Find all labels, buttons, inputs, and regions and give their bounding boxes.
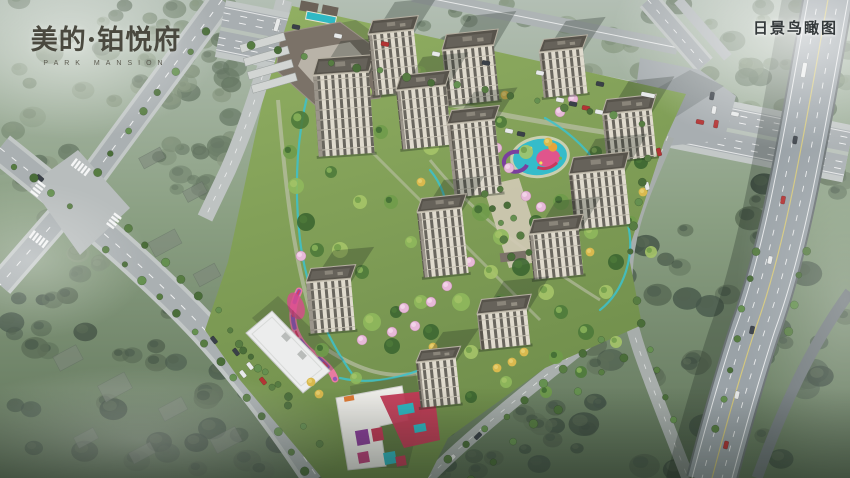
forest-canopy-highlight — [647, 286, 661, 297]
forest-canopy-highlight — [222, 110, 234, 119]
street-tree — [482, 86, 489, 93]
masterplan-scene — [0, 0, 850, 478]
shrub-highlight — [514, 260, 522, 268]
street-tree — [587, 108, 593, 114]
street-tree — [11, 164, 17, 170]
forest-canopy-highlight — [125, 349, 135, 357]
shrub-highlight — [521, 147, 527, 153]
street-tree — [328, 60, 334, 66]
rooftop-unit — [606, 161, 613, 166]
rooftop-unit — [480, 113, 486, 117]
forest-canopy-highlight — [189, 176, 195, 181]
street-tree — [274, 46, 282, 54]
brand-logo: 美的·铂悦府 PARK MANSION — [20, 18, 192, 67]
forest-canopy-highlight — [148, 355, 159, 364]
rooftop-unit — [570, 42, 576, 46]
street-tree — [481, 190, 488, 197]
street-tree — [579, 349, 587, 357]
shrub-highlight — [610, 256, 617, 263]
shrub-highlight — [601, 287, 607, 293]
street-tree — [620, 354, 628, 362]
forest-canopy-highlight — [171, 185, 178, 190]
shrub-highlight — [407, 238, 412, 243]
street-tree — [560, 104, 568, 112]
aerial-rendering: 美的·铂悦府 PARK MANSION 日景鸟瞰图 — [0, 0, 850, 478]
street-tree — [402, 73, 411, 82]
rooftop-unit — [511, 302, 517, 306]
rooftop-unit — [477, 37, 484, 41]
shrub-highlight — [612, 338, 617, 343]
cherry-blossom-highlight — [358, 336, 363, 341]
forest-canopy-highlight — [149, 341, 158, 348]
street-tree — [599, 369, 605, 375]
street-tree — [248, 354, 254, 360]
shrub-highlight — [392, 308, 397, 313]
forest-canopy-highlight — [168, 355, 179, 363]
rooftop-unit — [400, 23, 406, 27]
shrub-highlight — [327, 168, 332, 173]
shrub-highlight — [376, 127, 382, 133]
street-tree — [539, 379, 548, 388]
rooftop-unit — [337, 272, 343, 276]
street-tree — [629, 222, 638, 231]
street-tree — [639, 121, 645, 127]
rooftop-unit — [448, 201, 454, 205]
street-tree — [235, 340, 243, 348]
cherry-blossom-highlight — [427, 298, 432, 303]
shrub-highlight — [299, 215, 307, 223]
shrub-highlight — [425, 326, 432, 333]
street-tree — [454, 81, 461, 88]
shrub-highlight — [312, 245, 318, 251]
rooftop-unit — [325, 270, 333, 275]
forest-canopy-highlight — [164, 138, 174, 146]
forest-canopy-highlight — [114, 349, 123, 356]
forest-canopy-highlight — [61, 145, 72, 153]
view-caption: 日景鸟瞰图 — [753, 17, 838, 38]
street-tree — [654, 367, 660, 373]
golden-accent-highlight — [640, 189, 644, 193]
street-tree — [192, 329, 198, 335]
street-tree — [93, 168, 101, 176]
forest-canopy-highlight — [210, 138, 224, 149]
street-tree — [172, 309, 180, 317]
street-tree — [254, 364, 262, 372]
shrub-highlight — [474, 205, 482, 213]
cherry-blossom-highlight — [443, 282, 448, 287]
shrub-highlight — [551, 352, 557, 358]
tower-facade — [529, 229, 584, 280]
rooftop-unit — [636, 102, 642, 106]
tower-facade — [313, 71, 375, 157]
shrub-highlight — [577, 368, 582, 373]
cherry-blossom-highlight — [537, 203, 542, 208]
street-tree — [217, 357, 226, 366]
street-tree — [352, 64, 361, 73]
shrub-highlight — [486, 267, 492, 273]
shrub-highlight — [285, 147, 291, 153]
shrub-highlight — [416, 297, 422, 303]
shrub-highlight — [454, 295, 462, 303]
cherry-blossom-highlight — [297, 252, 302, 257]
street-tree — [161, 258, 170, 267]
shrub-highlight — [290, 180, 297, 187]
street-tree — [200, 340, 208, 348]
forest-canopy-highlight — [25, 339, 39, 350]
street-tree — [633, 297, 641, 305]
golden-accent-highlight — [308, 379, 312, 383]
street-tree — [489, 205, 496, 212]
street-tree — [247, 41, 255, 49]
street-tree — [262, 369, 268, 375]
cherry-blossom-highlight — [400, 304, 405, 309]
shrub-highlight — [466, 347, 472, 353]
cherry-blossom-highlight — [505, 164, 510, 169]
shrub-highlight — [293, 113, 301, 121]
street-tree — [157, 294, 163, 300]
shrub-highlight — [556, 307, 562, 313]
street-tree — [507, 92, 514, 99]
shrub-highlight — [355, 197, 361, 203]
brand-logo-english: PARK MANSION — [20, 60, 192, 67]
shrub-highlight — [317, 345, 323, 351]
golden-accent-highlight — [509, 359, 513, 363]
forest-canopy-highlight — [683, 358, 691, 364]
cherry-blossom-highlight — [411, 322, 416, 327]
street-tree — [559, 365, 567, 373]
street-tree — [628, 249, 634, 255]
shrub-highlight — [647, 248, 652, 253]
street-tree — [610, 111, 618, 119]
street-tree — [240, 347, 247, 354]
street-tree — [510, 215, 516, 221]
street-tree — [194, 292, 202, 300]
shrub-highlight — [352, 374, 357, 379]
shrub-highlight — [365, 315, 373, 323]
forest-canopy-highlight — [659, 254, 668, 261]
street-tree — [216, 307, 222, 313]
street-tree — [498, 220, 504, 226]
street-tree — [638, 178, 646, 186]
street-tree — [517, 232, 525, 240]
golden-accent-highlight — [521, 349, 525, 353]
street-tree — [177, 275, 185, 283]
cherry-blossom-highlight — [388, 328, 393, 333]
forest-canopy-highlight — [671, 260, 682, 268]
tower-facade — [477, 309, 530, 350]
golden-accent-highlight — [545, 139, 549, 143]
golden-accent-highlight — [418, 179, 422, 183]
forest-canopy-highlight — [676, 289, 690, 300]
forest-canopy-highlight — [224, 78, 234, 86]
street-tree — [727, 367, 733, 373]
street-tree — [107, 151, 113, 157]
street-tree — [647, 347, 653, 353]
cherry-blossom-highlight — [522, 192, 527, 197]
golden-accent-highlight — [494, 365, 498, 369]
forest-canopy-highlight — [589, 358, 600, 367]
street-tree — [227, 328, 233, 334]
forest-canopy-highlight — [194, 147, 203, 154]
street-tree — [507, 253, 515, 261]
street-tree — [428, 79, 435, 86]
rooftop-unit — [563, 222, 569, 226]
forest-canopy-highlight — [679, 225, 687, 231]
street-tree — [497, 186, 503, 192]
street-tree — [635, 198, 643, 206]
shrub-highlight — [580, 326, 587, 333]
street-tree — [535, 98, 541, 104]
street-tree — [504, 202, 511, 209]
golden-accent-highlight — [587, 249, 591, 253]
shrub-highlight — [502, 378, 507, 383]
street-tree — [301, 53, 308, 60]
forest-canopy-highlight — [172, 167, 184, 176]
street-tree — [637, 319, 645, 327]
forest-canopy-highlight — [215, 89, 224, 96]
street-tree — [526, 249, 532, 255]
shrub-highlight — [386, 197, 392, 203]
street-tree — [644, 155, 651, 162]
rooftop-unit — [444, 352, 449, 355]
street-tree — [500, 236, 508, 244]
shrub-highlight — [386, 340, 393, 347]
brand-logo-chinese: 美的·铂悦府 — [20, 18, 192, 57]
street-tree — [377, 67, 383, 73]
forest-canopy-highlight — [636, 237, 650, 247]
street-tree — [598, 336, 605, 343]
rooftop-unit — [335, 61, 345, 66]
